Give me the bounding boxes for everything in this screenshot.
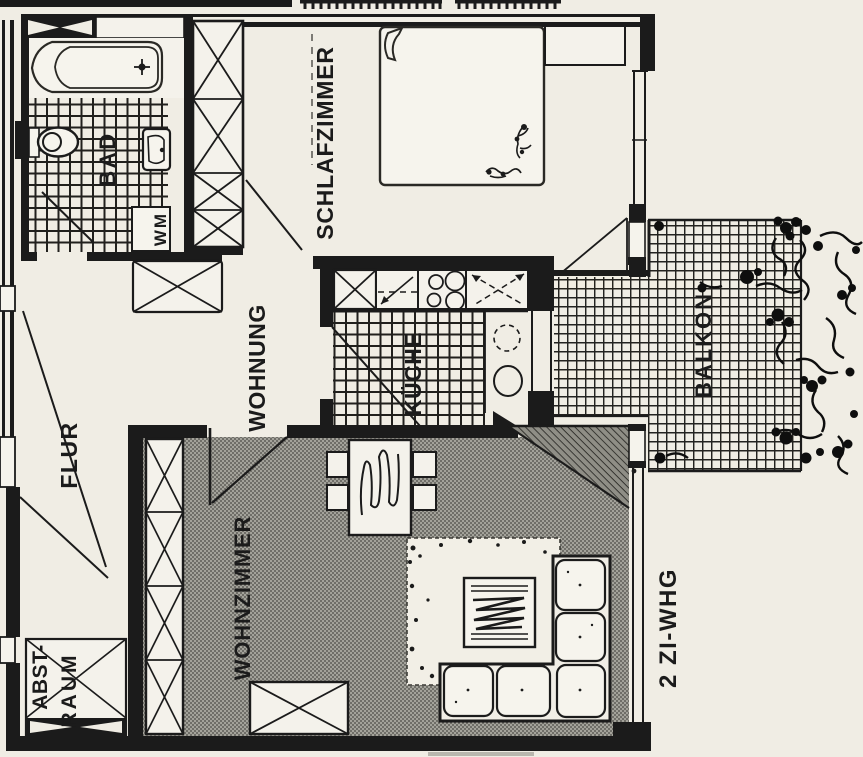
svg-text:SCHLAFZIMMER: SCHLAFZIMMER [312, 46, 338, 240]
svg-text:WOHNUNG: WOHNUNG [244, 304, 270, 431]
svg-text:RAUM: RAUM [58, 653, 81, 728]
svg-text:KÜCHE: KÜCHE [400, 332, 426, 416]
svg-text:2 ZI-WHG: 2 ZI-WHG [655, 568, 682, 688]
svg-text:ABST-: ABST- [29, 644, 52, 710]
svg-text:WOHNZIMMER: WOHNZIMMER [230, 516, 255, 680]
svg-text:BALKON: BALKON [691, 292, 716, 398]
svg-text:BAD: BAD [95, 131, 120, 186]
svg-text:WM: WM [151, 212, 170, 246]
